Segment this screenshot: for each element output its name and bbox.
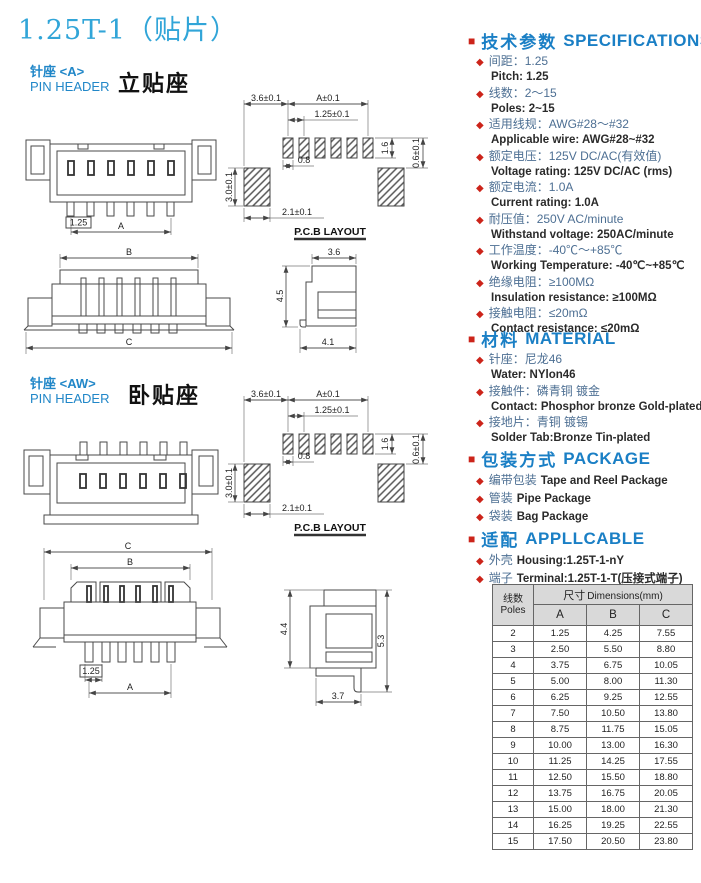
spec-item-zh: 额定电流：1.0A xyxy=(489,180,574,194)
diamond-bullet-icon: ◆ xyxy=(476,574,484,585)
cell-b: 4.25 xyxy=(587,626,640,642)
cell-a: 5.00 xyxy=(534,674,587,690)
cell-b: 5.50 xyxy=(587,642,640,658)
diamond-bullet-icon: ◆ xyxy=(476,476,484,487)
cell-poles: 4 xyxy=(493,658,534,674)
cell-poles: 5 xyxy=(493,674,534,690)
table-row: 3 2.50 5.50 8.80 xyxy=(493,642,693,658)
square-bullet-icon: ■ xyxy=(468,333,475,345)
cell-poles: 3 xyxy=(493,642,534,658)
spec-item-zh: 工作温度：-40℃～+85℃ xyxy=(489,243,623,257)
spec-item-zh: 接触电阻：≤20mΩ xyxy=(489,306,588,320)
cell-a: 6.25 xyxy=(534,690,587,706)
cell-b: 18.00 xyxy=(587,802,640,818)
col-header-dims-zh: 尺寸 xyxy=(563,590,585,602)
diamond-bullet-icon: ◆ xyxy=(476,512,484,523)
table-row: 5 5.00 8.00 11.30 xyxy=(493,674,693,690)
cell-b: 19.25 xyxy=(587,818,640,834)
table-row: 15 17.50 20.50 23.80 xyxy=(493,834,693,850)
dim-label-height2: 5.3 xyxy=(376,635,386,648)
cell-c: 20.05 xyxy=(640,786,693,802)
applicable-heading-zh: 适配 xyxy=(481,526,519,551)
applicable-item-zh: 外壳 xyxy=(489,553,513,567)
package-item-en: Bag Package xyxy=(517,511,589,523)
section-a-type-label: 立贴座 xyxy=(118,66,190,98)
diamond-bullet-icon: ◆ xyxy=(476,89,484,100)
table-header-row: 线数 Poles 尺寸Dimensions(mm) xyxy=(493,585,693,605)
package-heading-zh: 包装方式 xyxy=(481,446,557,471)
spec-item: ◆间距：1.25 Pitch: 1.25 xyxy=(476,54,701,84)
cell-c: 22.55 xyxy=(640,818,693,834)
material-item: ◆接触件：磷青铜 镀金 Contact: Phosphor bronze Gol… xyxy=(476,384,701,414)
table-row: 14 16.25 19.25 22.55 xyxy=(493,818,693,834)
package-item-en: Tape and Reel Package xyxy=(541,475,668,487)
pcb-layout-caption: P.C.B LAYOUT xyxy=(294,522,366,534)
diamond-bullet-icon: ◆ xyxy=(476,387,484,398)
cell-poles: 10 xyxy=(493,754,534,770)
table-row: 2 1.25 4.25 7.55 xyxy=(493,626,693,642)
spec-item-en: Voltage rating: 125V DC/AC (rms) xyxy=(476,165,701,179)
cell-a: 11.25 xyxy=(534,754,587,770)
cell-b: 15.50 xyxy=(587,770,640,786)
dim-label-pitch: 1.25±0.1 xyxy=(315,109,350,119)
cell-c: 21.30 xyxy=(640,802,693,818)
dim-label-height: 4.5 xyxy=(275,290,285,303)
package-item-en: Pipe Package xyxy=(517,493,591,505)
cell-c: 23.80 xyxy=(640,834,693,850)
drawing-pcb-layout-a: 3.6±0.1 A±0.1 1.25±0.1 0.8 1.6 0.6±0.1 3… xyxy=(224,92,472,244)
cell-b: 13.00 xyxy=(587,738,640,754)
cell-c: 8.80 xyxy=(640,642,693,658)
cell-poles: 12 xyxy=(493,786,534,802)
dim-label-pitch-aw: 1.25 xyxy=(82,666,100,676)
cell-c: 11.30 xyxy=(640,674,693,690)
square-bullet-icon: ■ xyxy=(468,533,475,545)
cell-c: 13.80 xyxy=(640,706,693,722)
table-row: 12 13.75 16.75 20.05 xyxy=(493,786,693,802)
cell-poles: 11 xyxy=(493,770,534,786)
dim-label-offset: 0.6±0.1 xyxy=(411,138,421,168)
cell-poles: 13 xyxy=(493,802,534,818)
cell-b: 10.50 xyxy=(587,706,640,722)
cell-c: 16.30 xyxy=(640,738,693,754)
cell-poles: 9 xyxy=(493,738,534,754)
cell-a: 8.75 xyxy=(534,722,587,738)
applicable-item-en: Housing:1.25T-1-nY xyxy=(517,555,624,567)
dim-label-a: A±0.1 xyxy=(316,93,339,103)
spec-item: ◆耐压值：250V AC/minute Withstand voltage: 2… xyxy=(476,212,701,242)
dim-label-a: A±0.1 xyxy=(316,389,339,399)
dim-label-offset: 0.6±0.1 xyxy=(411,434,421,464)
dim-label-pad-width: 0.8 xyxy=(298,451,311,461)
cell-b: 16.75 xyxy=(587,786,640,802)
spec-item-en: Poles: 2~15 xyxy=(476,102,701,116)
dim-label-c: C xyxy=(126,337,133,347)
col-header-b: B xyxy=(587,605,640,626)
cell-a: 13.75 xyxy=(534,786,587,802)
material-item-en: Water: NYlon46 xyxy=(476,368,701,382)
material-item: ◆针座：尼龙46 Water: NYlon46 xyxy=(476,352,701,382)
spec-item: ◆适用线规：AWG#28～#32 Applicable wire: AWG#28… xyxy=(476,117,701,147)
material-item-zh: 针座：尼龙46 xyxy=(489,352,562,366)
drawing-front-view-a: 1.25 A xyxy=(16,132,226,238)
cell-c: 15.05 xyxy=(640,722,693,738)
diamond-bullet-icon: ◆ xyxy=(476,57,484,68)
dim-label-b: B xyxy=(127,557,133,567)
drawing-side-view-a: 3.6 4.5 4.1 xyxy=(272,246,397,364)
cell-b: 8.00 xyxy=(587,674,640,690)
spec-item-en: Pitch: 1.25 xyxy=(476,70,701,84)
diamond-bullet-icon: ◆ xyxy=(476,215,484,226)
col-header-a: A xyxy=(534,605,587,626)
package-item-zh: 管装 xyxy=(489,491,513,505)
package-item: ◆管装Pipe Package xyxy=(476,490,701,508)
dim-label-a-aw: A xyxy=(127,682,133,692)
page-title: 1.25T-1（贴片） xyxy=(18,8,238,47)
cell-poles: 2 xyxy=(493,626,534,642)
applicable-item: ◆外壳Housing:1.25T-1-nY xyxy=(476,552,701,570)
dim-label-side-pad-width: 2.1±0.1 xyxy=(282,207,312,217)
package-list: ◆编带包装Tape and Reel Package ◆管装Pipe Packa… xyxy=(476,472,701,526)
dim-label-pitch: 1.25±0.1 xyxy=(315,405,350,415)
cell-a: 3.75 xyxy=(534,658,587,674)
page-root: 1.25T-1（贴片） 针座 <A> PIN HEADER 立贴座 1.25 A… xyxy=(0,0,701,883)
diamond-bullet-icon: ◆ xyxy=(476,183,484,194)
dim-label-pad-height: 1.6 xyxy=(380,438,390,451)
drawing-side-view-aw: 4.4 5.3 3.7 xyxy=(268,572,403,714)
pcb-layout-caption: P.C.B LAYOUT xyxy=(294,226,366,238)
package-heading-en: PACKAGE xyxy=(563,449,650,469)
section-a-label: 针座 <A> PIN HEADER xyxy=(30,64,109,94)
cell-poles: 7 xyxy=(493,706,534,722)
specifications-heading: ■ 技术参数 SPECIFICATIONS xyxy=(468,28,701,53)
diamond-bullet-icon: ◆ xyxy=(476,418,484,429)
material-heading-en: MATERIAL xyxy=(525,329,616,349)
table-row: 8 8.75 11.75 15.05 xyxy=(493,722,693,738)
cell-a: 16.25 xyxy=(534,818,587,834)
section-a-label-en: PIN HEADER xyxy=(30,79,109,94)
material-item-zh: 接触件：磷青铜 镀金 xyxy=(489,384,600,398)
dimensions-table: 线数 Poles 尺寸Dimensions(mm) A B C 2 1. xyxy=(492,584,693,850)
diamond-bullet-icon: ◆ xyxy=(476,120,484,131)
col-header-poles: 线数 Poles xyxy=(493,585,534,626)
cell-a: 7.50 xyxy=(534,706,587,722)
table-body: 2 1.25 4.25 7.55 3 2.50 5.50 8.80 4 3.75… xyxy=(493,626,693,850)
spec-item: ◆绝缘电阻：≥100MΩ Insulation resistance: ≥100… xyxy=(476,275,701,305)
table-row: 6 6.25 9.25 12.55 xyxy=(493,690,693,706)
spec-item-zh: 适用线规：AWG#28～#32 xyxy=(489,117,629,131)
applicable-heading-en: APPLLCABLE xyxy=(525,529,644,549)
dim-label-height1: 4.4 xyxy=(279,623,289,636)
cell-poles: 8 xyxy=(493,722,534,738)
spec-item-zh: 额定电压：125V DC/AC(有效值) xyxy=(489,149,662,163)
dim-label-36: 3.6±0.1 xyxy=(251,389,281,399)
square-bullet-icon: ■ xyxy=(468,35,475,47)
cell-c: 18.80 xyxy=(640,770,693,786)
cell-a: 1.25 xyxy=(534,626,587,642)
dim-label-pad-width: 0.8 xyxy=(298,155,311,165)
spec-item-zh: 耐压值：250V AC/minute xyxy=(489,212,624,226)
section-aw-type-label: 卧贴座 xyxy=(128,378,200,410)
diamond-bullet-icon: ◆ xyxy=(476,278,484,289)
cell-poles: 6 xyxy=(493,690,534,706)
section-aw-label: 针座 <AW> PIN HEADER xyxy=(30,376,109,406)
cell-c: 10.05 xyxy=(640,658,693,674)
dim-label-width: 3.6 xyxy=(328,247,341,257)
table-row: 11 12.50 15.50 18.80 xyxy=(493,770,693,786)
specifications-list: ◆间距：1.25 Pitch: 1.25 ◆线数：2～15 Poles: 2~1… xyxy=(476,54,701,338)
drawing-top-view-aw: C B 1.25 A xyxy=(4,540,246,712)
diamond-bullet-icon: ◆ xyxy=(476,246,484,257)
dim-label-side-pad-width: 2.1±0.1 xyxy=(282,503,312,513)
dim-label-c: C xyxy=(125,541,132,551)
table-row: 13 15.00 18.00 21.30 xyxy=(493,802,693,818)
table-row: 9 10.00 13.00 16.30 xyxy=(493,738,693,754)
package-item: ◆袋装Bag Package xyxy=(476,508,701,526)
spec-item-en: Insulation resistance: ≥100MΩ xyxy=(476,291,701,305)
right-column: ■ 技术参数 SPECIFICATIONS ◆间距：1.25 Pitch: 1.… xyxy=(468,26,701,883)
spec-item-en: Working Temperature: -40℃~+85℃ xyxy=(476,259,701,273)
cell-a: 15.00 xyxy=(534,802,587,818)
material-list: ◆针座：尼龙46 Water: NYlon46 ◆接触件：磷青铜 镀金 Cont… xyxy=(476,352,701,447)
dim-label-36: 3.6±0.1 xyxy=(251,93,281,103)
spec-item: ◆工作温度：-40℃～+85℃ Working Temperature: -40… xyxy=(476,243,701,273)
package-item: ◆编带包装Tape and Reel Package xyxy=(476,472,701,490)
table-row: 4 3.75 6.75 10.05 xyxy=(493,658,693,674)
material-item-zh: 接地片：青铜 镀锡 xyxy=(489,415,588,429)
section-aw-label-zh: 针座 <AW> xyxy=(30,376,109,391)
cell-a: 2.50 xyxy=(534,642,587,658)
cell-a: 12.50 xyxy=(534,770,587,786)
cell-b: 11.75 xyxy=(587,722,640,738)
section-aw-label-en: PIN HEADER xyxy=(30,391,109,406)
applicable-item-zh: 端子 xyxy=(489,571,513,585)
package-item-zh: 袋装 xyxy=(489,509,513,523)
material-item-en: Solder Tab:Bronze Tin-plated xyxy=(476,431,701,445)
spec-item-zh: 线数：2～15 xyxy=(489,86,557,100)
dim-label-base-aw: 3.7 xyxy=(332,691,345,701)
material-heading-zh: 材料 xyxy=(481,326,519,351)
applicable-list: ◆外壳Housing:1.25T-1-nY ◆端子Terminal:1.25T-… xyxy=(476,552,701,588)
col-header-dimensions: 尺寸Dimensions(mm) xyxy=(534,585,693,605)
specifications-heading-zh: 技术参数 xyxy=(481,28,557,53)
col-header-poles-en: Poles xyxy=(500,605,525,616)
dim-label-b: B xyxy=(126,247,132,257)
square-bullet-icon: ■ xyxy=(468,453,475,465)
cell-b: 6.75 xyxy=(587,658,640,674)
spec-item-zh: 绝缘电阻：≥100MΩ xyxy=(489,275,595,289)
cell-c: 7.55 xyxy=(640,626,693,642)
table-row: 10 11.25 14.25 17.55 xyxy=(493,754,693,770)
spec-item-en: Applicable wire: AWG#28~#32 xyxy=(476,133,701,147)
cell-b: 20.50 xyxy=(587,834,640,850)
applicable-heading: ■ 适配 APPLLCABLE xyxy=(468,526,645,551)
dim-label-side-pad: 3.0±0.1 xyxy=(224,172,234,202)
diamond-bullet-icon: ◆ xyxy=(476,152,484,163)
material-item-en: Contact: Phosphor bronze Gold-plated xyxy=(476,400,701,414)
table-row: 7 7.50 10.50 13.80 xyxy=(493,706,693,722)
package-item-zh: 编带包装 xyxy=(489,473,537,487)
cell-poles: 15 xyxy=(493,834,534,850)
cell-poles: 14 xyxy=(493,818,534,834)
spec-item: ◆额定电压：125V DC/AC(有效值) Voltage rating: 12… xyxy=(476,149,701,179)
diamond-bullet-icon: ◆ xyxy=(476,309,484,320)
diamond-bullet-icon: ◆ xyxy=(476,355,484,366)
spec-item: ◆额定电流：1.0A Current rating: 1.0A xyxy=(476,180,701,210)
cell-a: 10.00 xyxy=(534,738,587,754)
col-header-c: C xyxy=(640,605,693,626)
col-header-dims-en: Dimensions(mm) xyxy=(587,591,663,602)
material-item: ◆接地片：青铜 镀锡 Solder Tab:Bronze Tin-plated xyxy=(476,415,701,445)
cell-c: 12.55 xyxy=(640,690,693,706)
specifications-heading-en: SPECIFICATIONS xyxy=(563,31,701,51)
cell-a: 17.50 xyxy=(534,834,587,850)
dim-label-base: 4.1 xyxy=(322,337,335,347)
dim-label-pad-height: 1.6 xyxy=(380,142,390,155)
spec-item-zh: 间距：1.25 xyxy=(489,54,548,68)
cell-b: 14.25 xyxy=(587,754,640,770)
spec-item-en: Current rating: 1.0A xyxy=(476,196,701,210)
material-heading: ■ 材料 MATERIAL xyxy=(468,326,616,351)
drawing-top-view-a: B C xyxy=(12,246,237,361)
diamond-bullet-icon: ◆ xyxy=(476,494,484,505)
cell-b: 9.25 xyxy=(587,690,640,706)
section-a-label-zh: 针座 <A> xyxy=(30,64,109,79)
spec-item-en: Withstand voltage: 250AC/minute xyxy=(476,228,701,242)
col-header-poles-zh: 线数 xyxy=(503,594,523,605)
drawing-front-view-aw xyxy=(16,434,226,542)
drawing-pcb-layout-aw: 3.6±0.1 A±0.1 1.25±0.1 0.8 1.6 0.6±0.1 3… xyxy=(224,388,472,540)
dim-label-pitch-a: 1.25 xyxy=(70,218,88,228)
spec-item: ◆线数：2～15 Poles: 2~15 xyxy=(476,86,701,116)
cell-c: 17.55 xyxy=(640,754,693,770)
dim-label-span-a: A xyxy=(118,221,124,231)
package-heading: ■ 包装方式 PACKAGE xyxy=(468,446,651,471)
diamond-bullet-icon: ◆ xyxy=(476,556,484,567)
